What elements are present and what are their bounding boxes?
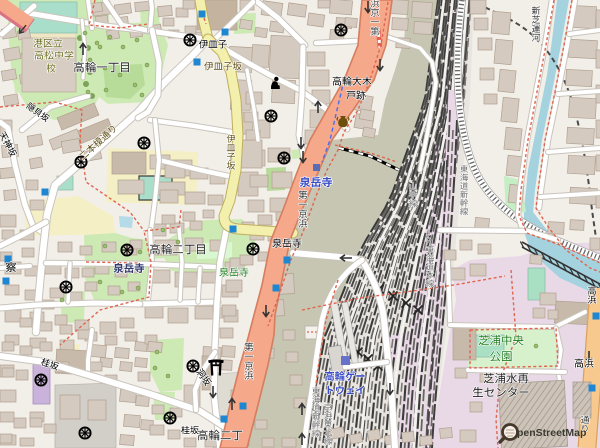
svg-text:penStreetMap: penStreetMap	[517, 427, 586, 439]
